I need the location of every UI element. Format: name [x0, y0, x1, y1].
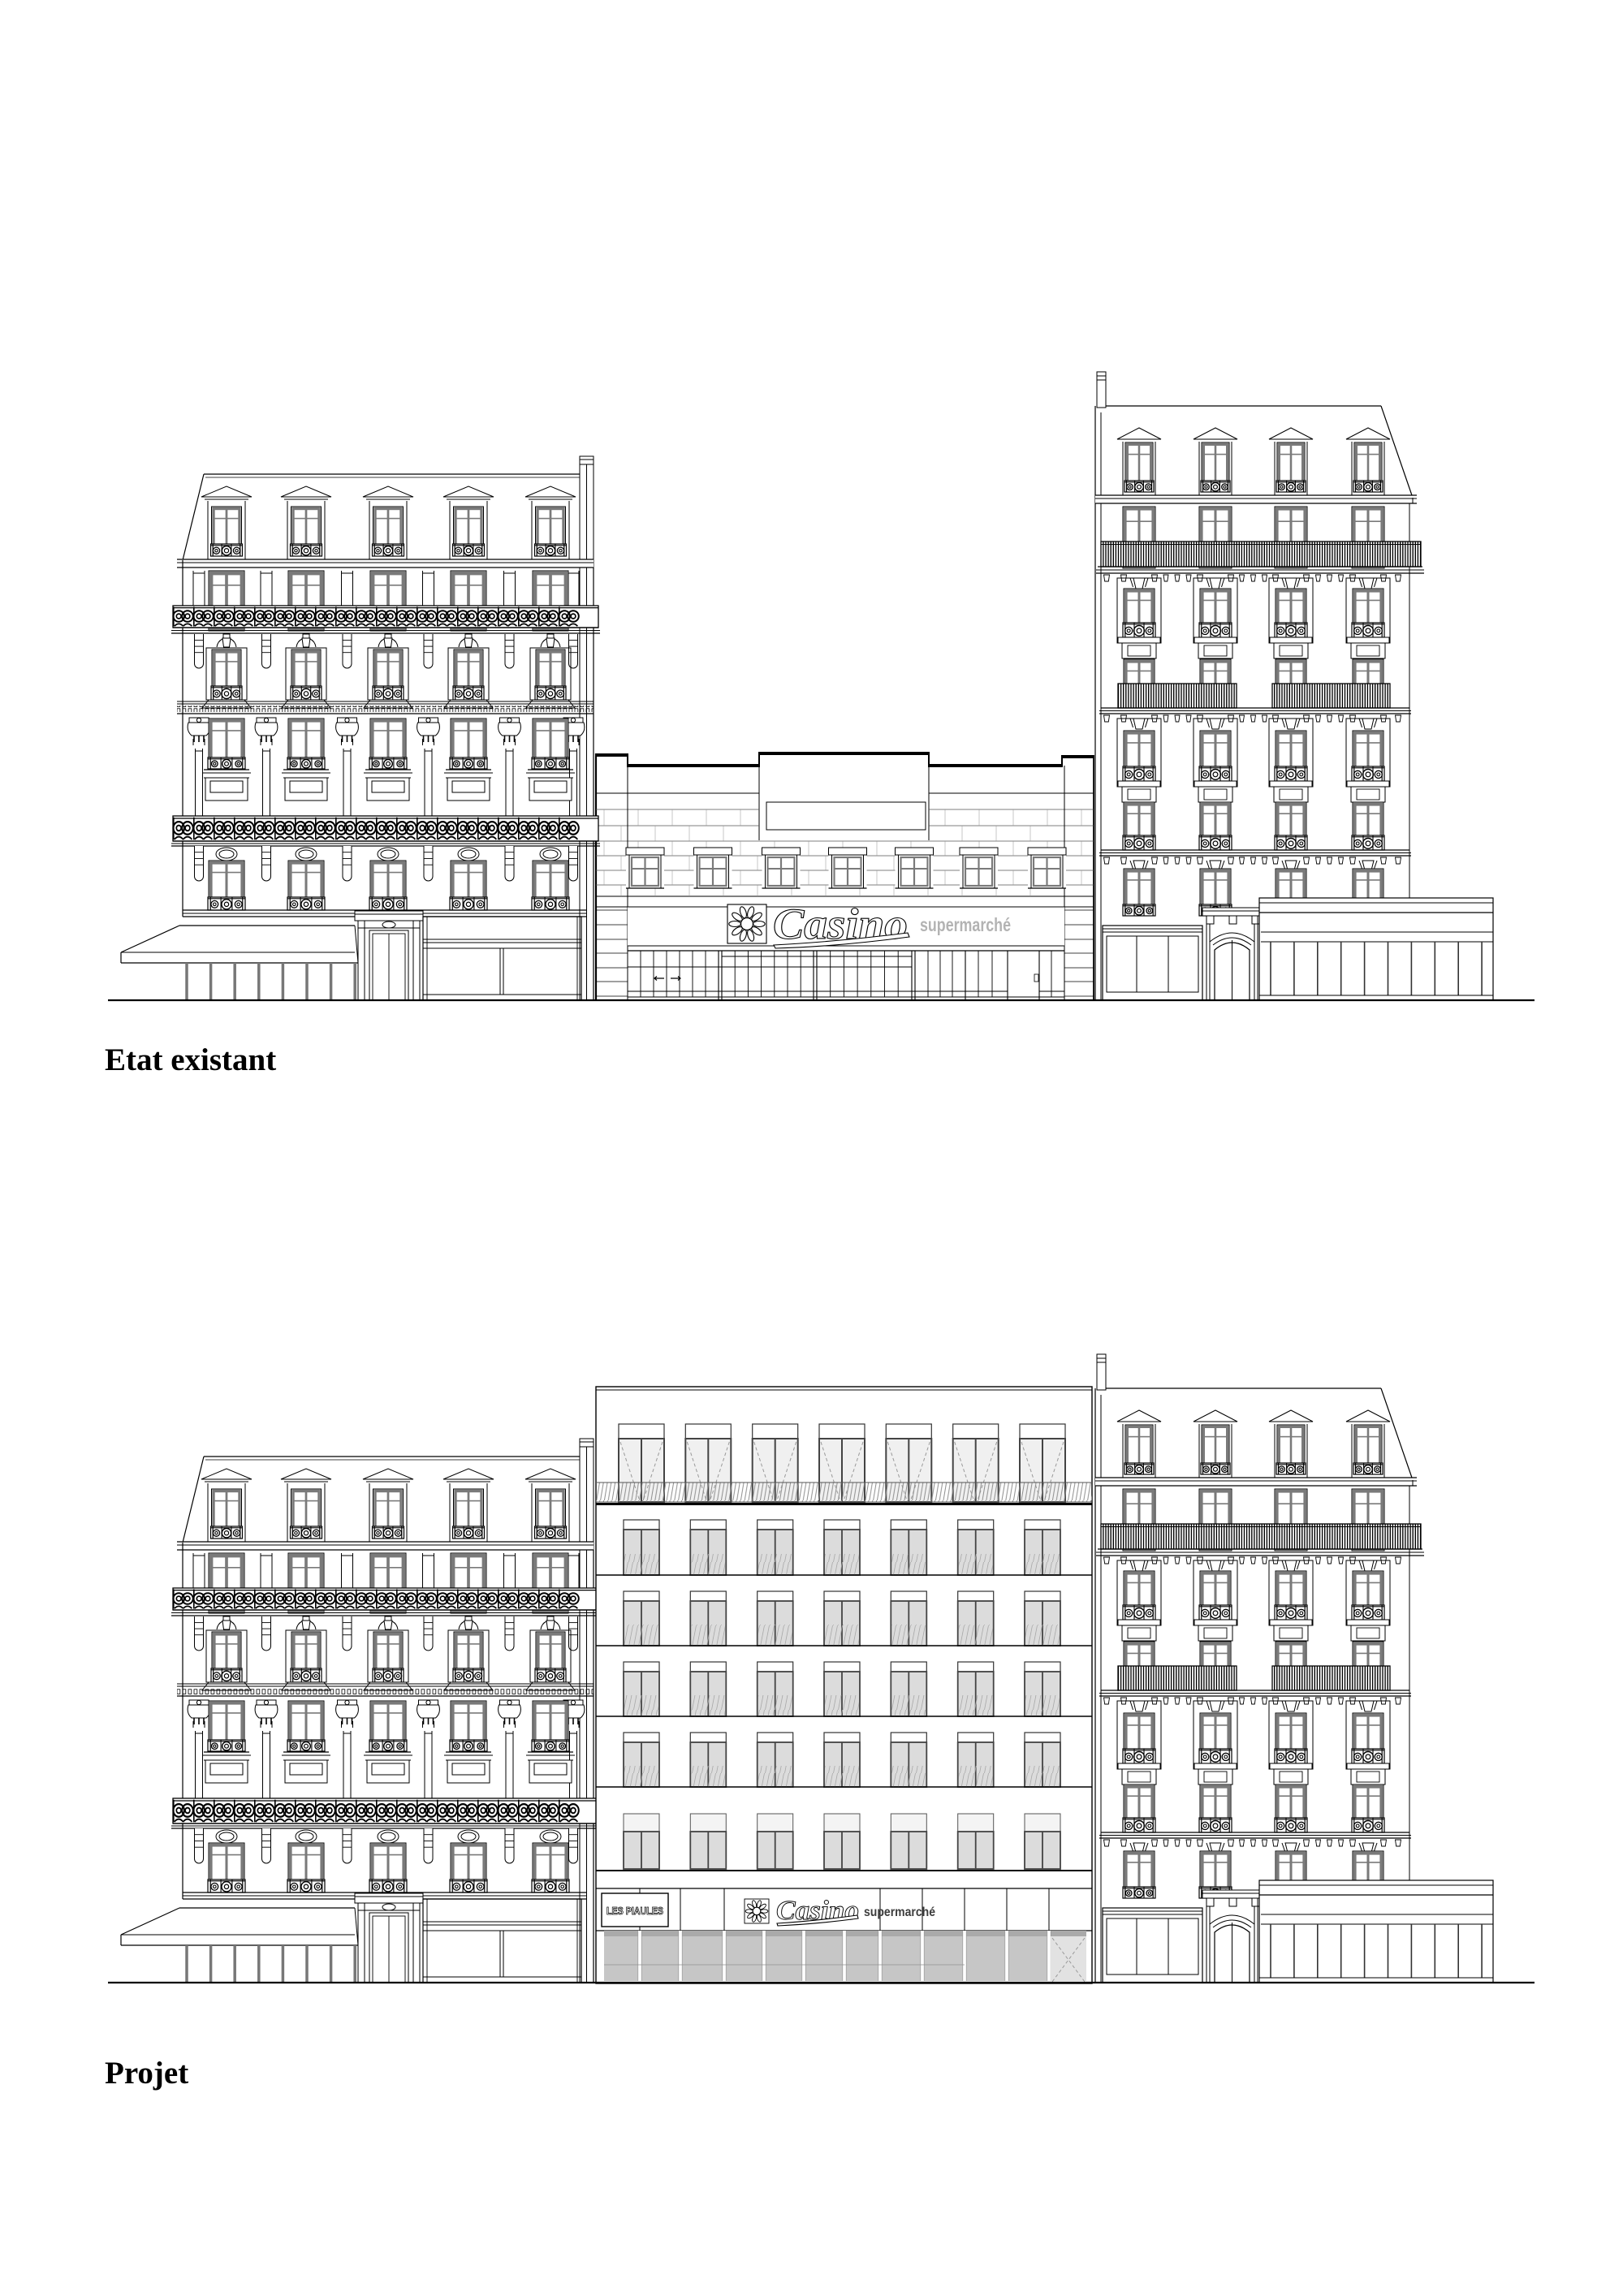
- svg-text:Etat existant: Etat existant: [105, 1042, 276, 1077]
- svg-text:Projet: Projet: [105, 2056, 188, 2091]
- svg-text:supermarché: supermarché: [920, 914, 1011, 935]
- svg-text:supermarché: supermarché: [864, 1905, 935, 1919]
- svg-text:LES PIAULES: LES PIAULES: [606, 1905, 663, 1917]
